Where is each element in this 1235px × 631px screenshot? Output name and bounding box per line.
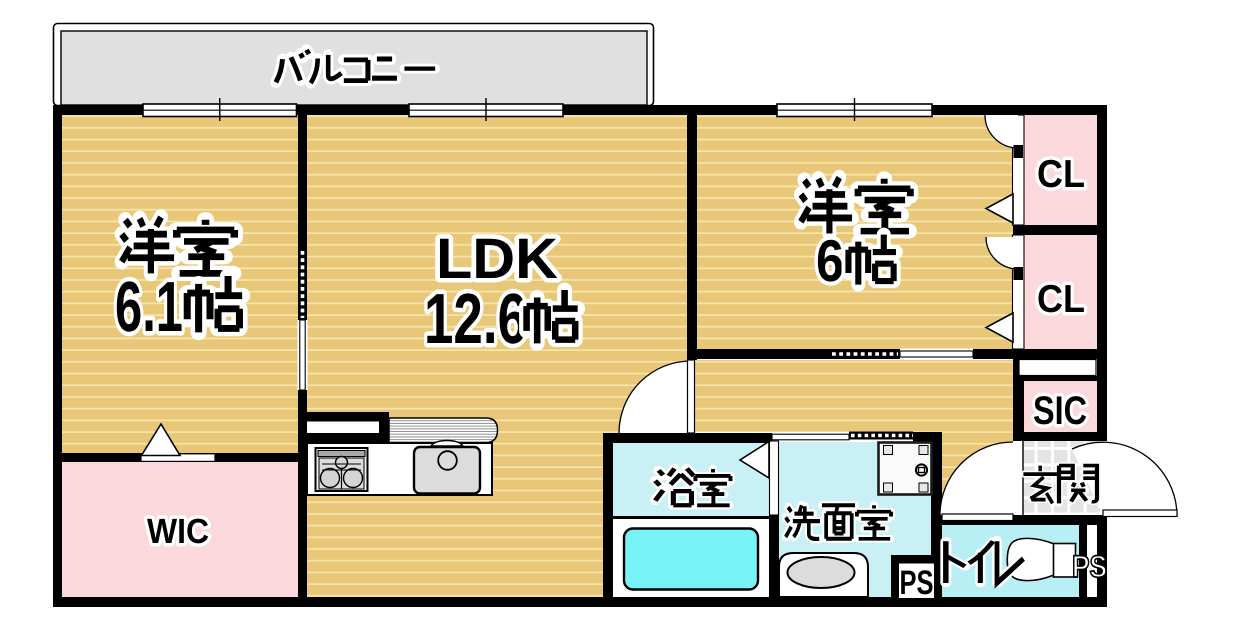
svg-text:SIC: SIC [1033, 389, 1087, 433]
svg-text:PS: PS [900, 564, 934, 602]
svg-text:CL: CL [1037, 278, 1085, 321]
svg-text:WIC: WIC [147, 512, 209, 551]
svg-text:6: 6 [816, 228, 844, 294]
svg-text:CL: CL [1037, 153, 1085, 196]
svg-text:6.1: 6.1 [115, 268, 183, 347]
svg-text:12.6: 12.6 [424, 280, 527, 359]
svg-text:PS: PS [1072, 549, 1107, 584]
